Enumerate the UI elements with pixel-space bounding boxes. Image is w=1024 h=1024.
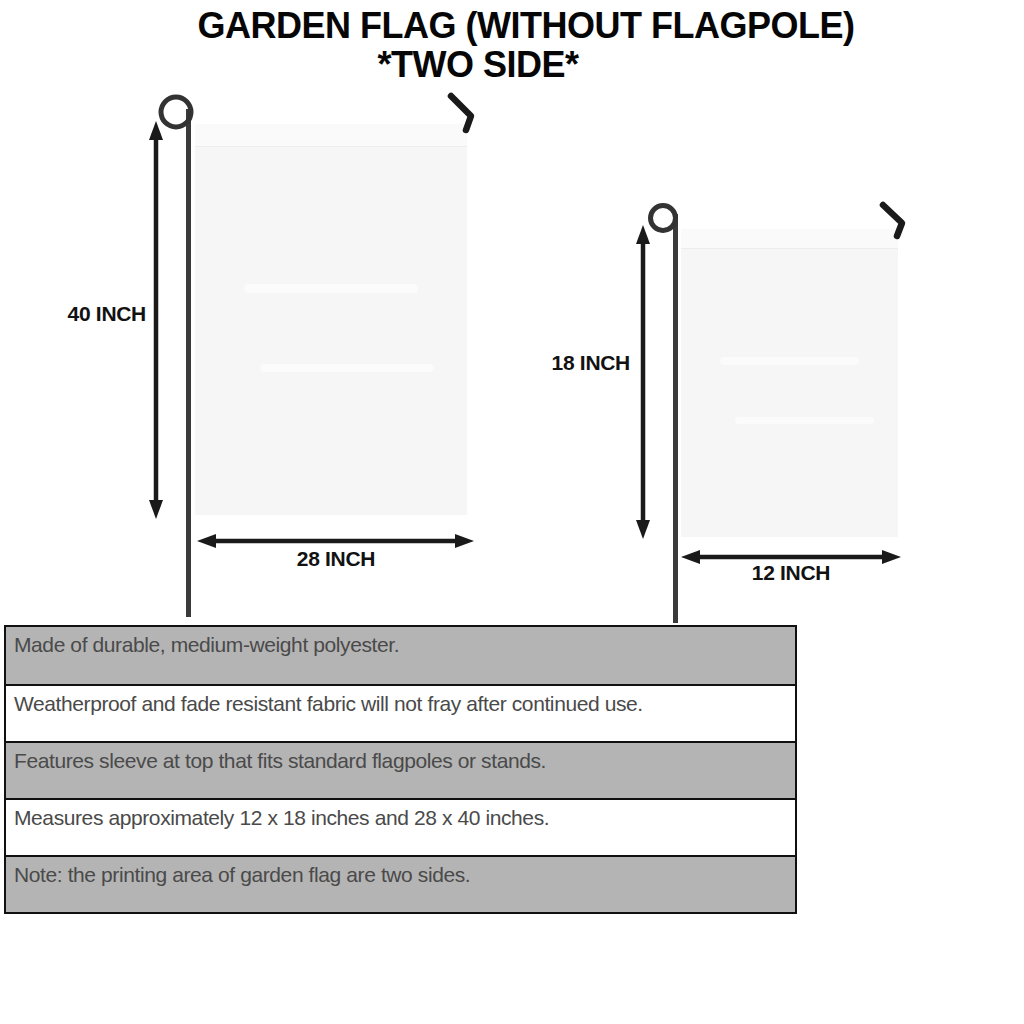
- pole-loop-icon: [651, 206, 676, 231]
- pole-hook-icon: [883, 205, 902, 236]
- small-height-arrow: [636, 225, 650, 539]
- features-table: Made of durable, medium-weight polyester…: [4, 625, 797, 914]
- pole-hook-icon: [451, 96, 471, 130]
- feature-row: Weatherproof and fade resistant fabric w…: [6, 684, 795, 741]
- feature-row: Note: the printing area of garden flag a…: [6, 855, 795, 912]
- small-flag-width-label: 12 INCH: [682, 561, 900, 585]
- feature-row: Made of durable, medium-weight polyester…: [6, 627, 795, 684]
- large-flag-width-label: 28 INCH: [198, 547, 474, 571]
- feature-row: Features sleeve at top that fits standar…: [6, 741, 795, 798]
- large-width-arrow: [197, 534, 474, 548]
- small-flag-height-label: 18 INCH: [512, 351, 630, 375]
- feature-row: Measures approximately 12 x 18 inches an…: [6, 798, 795, 855]
- large-height-arrow: [149, 121, 163, 519]
- garden-flag-product-diagram: GARDEN FLAG (WITHOUT FLAGPOLE) *TWO SIDE…: [0, 0, 1024, 1024]
- large-flag-height-label: 40 INCH: [28, 302, 146, 326]
